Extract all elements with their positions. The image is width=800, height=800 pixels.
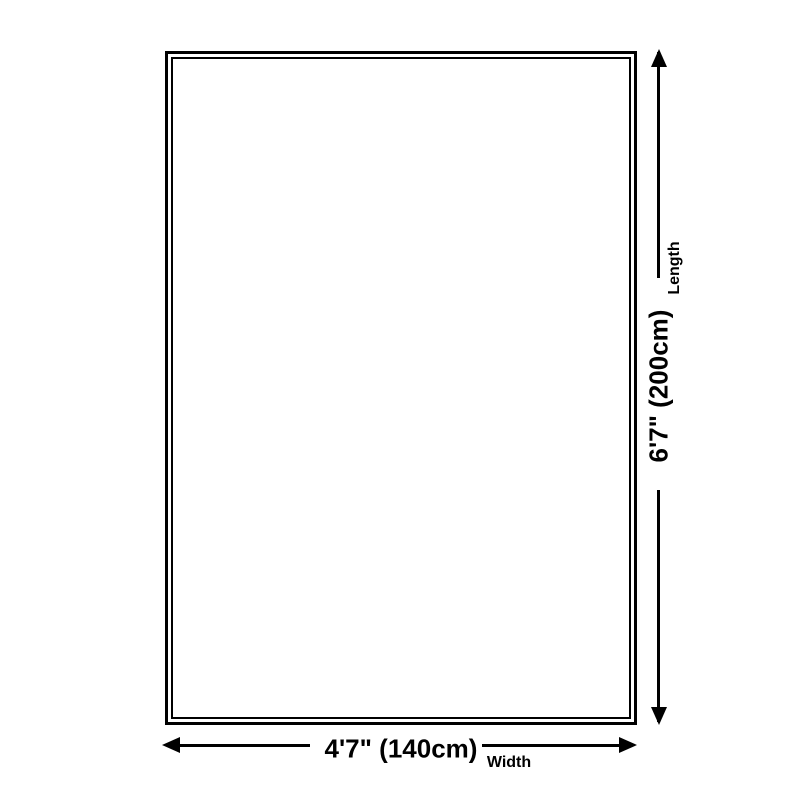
length-dimension-line-top <box>657 52 660 278</box>
width-axis-label: Width <box>487 754 531 772</box>
width-dimension-line-right <box>482 744 619 747</box>
product-outline <box>165 51 637 725</box>
arrow-down-icon <box>651 707 667 725</box>
width-dimension-value: 4'7" (140cm) <box>325 734 478 765</box>
length-axis-label: Length <box>666 241 684 294</box>
width-dimension-line-left <box>178 744 310 747</box>
arrow-right-icon <box>619 737 637 753</box>
length-dimension-line-bottom <box>657 490 660 722</box>
dimension-diagram: Length 6'7" (200cm) 4'7" (140cm) Width <box>0 0 800 800</box>
product-outline-inner-border <box>171 57 631 719</box>
length-dimension-value: 6'7" (200cm) <box>644 310 675 463</box>
